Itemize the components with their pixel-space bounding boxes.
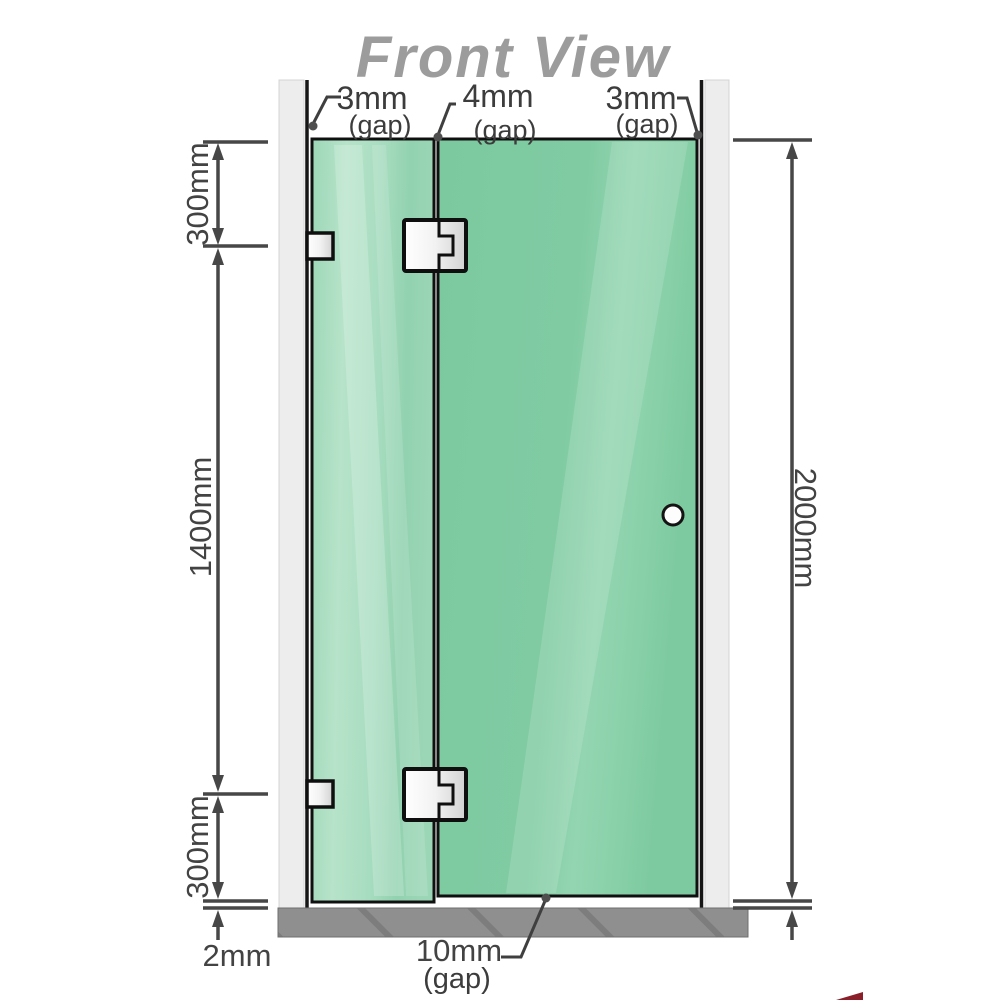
dim-label-left-middle: 1400mm [183, 457, 218, 578]
right-wall [705, 80, 729, 908]
dim-label-floor-gap: 2mm [203, 938, 272, 973]
dim-label-left-bottom: 300mm [180, 795, 215, 898]
gap-label-right-note: (gap) [615, 109, 678, 139]
leader-gap-right [677, 98, 697, 132]
wall-bracket-top [307, 233, 333, 259]
leader-dot [309, 122, 318, 131]
leader-gap-middle [438, 104, 456, 135]
floor-bar [278, 908, 748, 937]
hinge-top [404, 220, 466, 271]
wall-bracket-bottom [307, 781, 333, 807]
door-glass-panel [438, 139, 697, 896]
hinge-bottom [404, 769, 466, 820]
leader-dot [434, 133, 443, 142]
leader-dot [542, 894, 551, 903]
corner-logo-fragment [836, 992, 863, 1000]
dim-arrow-down [786, 882, 798, 899]
dim-arrow-down [212, 775, 224, 792]
gap-label-middle-note: (gap) [473, 115, 536, 145]
diagram-canvas: Front View [0, 0, 1000, 1000]
dim-label-left-top: 300mm [180, 142, 215, 245]
left-wall [279, 80, 304, 908]
leader-dot [694, 131, 703, 140]
door-knob [663, 505, 683, 525]
gap-label-bottom-note: (gap) [423, 963, 491, 995]
dim-label-right-total: 2000mm [788, 468, 823, 589]
front-view-diagram: Front View [0, 0, 1000, 1000]
gap-label-left-note: (gap) [348, 110, 411, 140]
gap-label-middle-value: 4mm [462, 78, 533, 114]
